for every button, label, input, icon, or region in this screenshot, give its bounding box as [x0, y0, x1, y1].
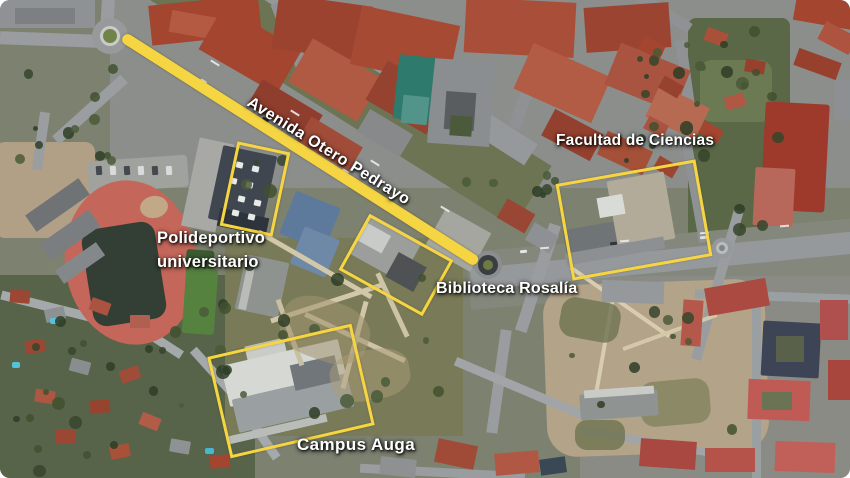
map-building [401, 95, 430, 126]
swimming-pool [205, 448, 214, 454]
tree [159, 347, 165, 353]
tree [624, 158, 629, 163]
polideportivo-label: Polideportivo universitario [157, 227, 277, 275]
map-building [379, 456, 417, 478]
map-building [539, 456, 567, 475]
tree [35, 141, 43, 149]
map-vehicle [166, 166, 173, 175]
map-building [828, 360, 850, 400]
satellite-map: Avenida Otero Pedrayo Facultad de Cienci… [0, 0, 850, 478]
map-vehicle [110, 166, 117, 175]
map-building [494, 450, 540, 476]
tree [106, 362, 115, 371]
tree [15, 154, 25, 164]
tree [720, 41, 728, 49]
tree [653, 48, 662, 57]
tree [89, 114, 100, 125]
house [209, 454, 230, 469]
house [89, 399, 110, 414]
tree [145, 345, 153, 353]
tree [331, 273, 344, 286]
tree [597, 401, 605, 409]
map-building [820, 300, 848, 340]
tree [423, 337, 429, 343]
tree [24, 69, 34, 79]
map-vehicle [138, 166, 145, 175]
tree [71, 125, 79, 133]
house [55, 430, 75, 443]
roundabout [103, 29, 117, 43]
map-terrain [776, 336, 804, 362]
map-imagery-layer [0, 0, 850, 478]
map-terrain [575, 420, 625, 450]
tree [734, 204, 744, 214]
tree [170, 326, 181, 337]
facultad-label: Facultad de Ciencias [556, 132, 714, 150]
map-building [835, 80, 850, 120]
map-building [15, 8, 75, 24]
tree [543, 171, 551, 179]
tree [540, 192, 547, 199]
campus-auga-label: Campus Auga [297, 435, 415, 455]
tree [663, 315, 672, 324]
biblioteca-label: Biblioteca Rosalía [436, 280, 577, 298]
swimming-pool [12, 362, 20, 368]
map-building [774, 441, 835, 473]
map-building [753, 167, 796, 227]
tree [32, 343, 40, 351]
tree [149, 386, 158, 395]
house [9, 289, 30, 304]
tree [26, 414, 34, 422]
map-building [464, 0, 577, 58]
tree [95, 151, 105, 161]
map-building [705, 448, 755, 472]
tree [108, 64, 118, 74]
tree [649, 122, 659, 132]
map-road [0, 31, 98, 47]
tree [68, 347, 76, 355]
tree [772, 132, 784, 144]
map-vehicle [520, 250, 527, 254]
tree [721, 66, 733, 78]
tree [179, 403, 184, 408]
tree [13, 416, 20, 423]
map-vehicle [96, 166, 103, 175]
tree [199, 307, 209, 317]
house [130, 315, 150, 328]
tree [110, 441, 118, 449]
tree [278, 314, 290, 326]
map-terrain [762, 392, 792, 410]
tree [489, 179, 498, 188]
track-infield [80, 220, 168, 328]
tree [752, 69, 759, 76]
map-vehicle [152, 166, 159, 175]
map-vehicle [124, 166, 131, 175]
sports-pitch [182, 267, 219, 335]
tree [90, 92, 100, 102]
tree [33, 465, 45, 477]
roundabout [719, 245, 725, 251]
map-building [449, 115, 472, 136]
map-building [602, 280, 665, 304]
roundabout [483, 260, 493, 270]
tree [757, 220, 768, 231]
tree [371, 390, 383, 402]
tree [649, 306, 660, 317]
map-building [434, 438, 478, 470]
tree [698, 149, 711, 162]
map-building [639, 438, 697, 470]
